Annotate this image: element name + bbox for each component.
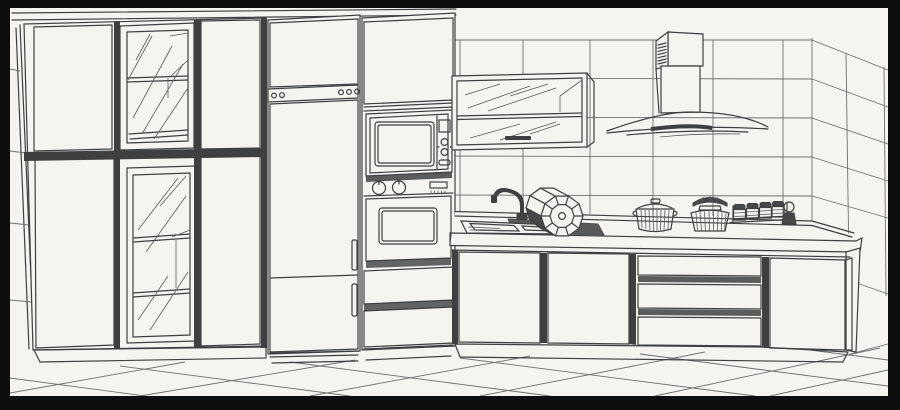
flip-door-handle <box>505 136 531 140</box>
kitchen-sketch-page: tiled back wall tiled right wall corner … <box>0 0 900 410</box>
stile <box>261 18 267 348</box>
pantry-unit: tall pantry unit with hinge strip and ha… <box>268 15 360 363</box>
wall-glass-cabinet: wall cabinet with horizontal glass flip … <box>452 73 594 150</box>
kitchen-line-drawing: tiled back wall tiled right wall corner … <box>0 0 900 410</box>
chimney-lower <box>661 66 700 113</box>
chimney-upper-front <box>668 32 703 66</box>
appliance-tower: built-in microwave and oven tower with d… <box>362 13 455 360</box>
tall-bank-face <box>24 18 266 350</box>
tall-cabinet-bank: tall cabinet bank with glass display doo… <box>24 18 267 362</box>
stile <box>114 21 120 349</box>
pantry-face <box>268 15 360 354</box>
stile <box>194 20 201 348</box>
